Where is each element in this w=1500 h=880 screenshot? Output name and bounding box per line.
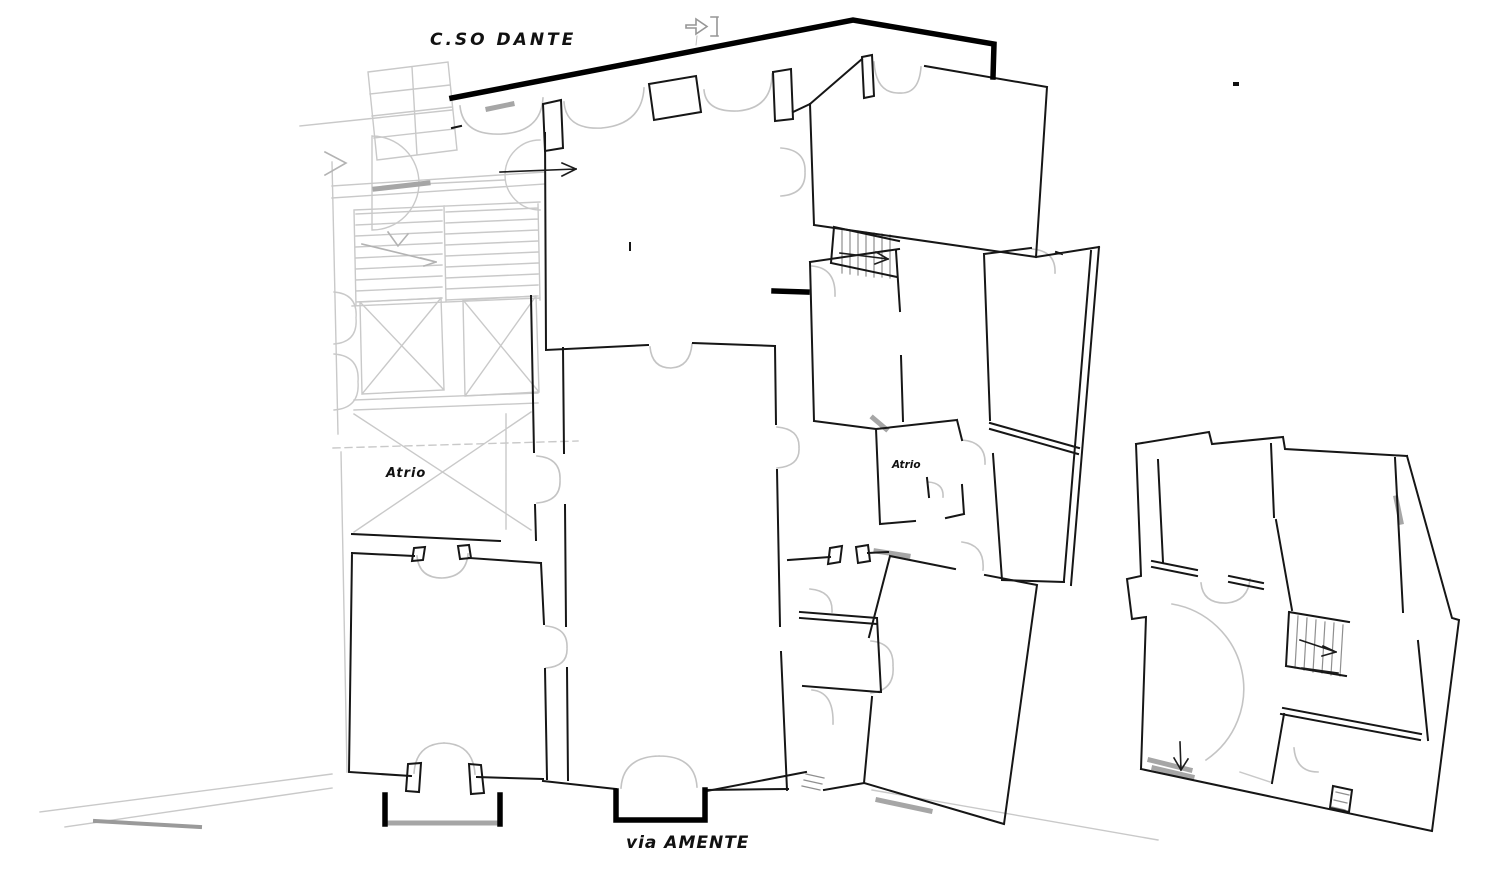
door-arcs-layer [414,62,1318,788]
left-block-walls [349,296,547,779]
staircase-left [352,202,540,306]
floor-plan-page: C.SO DANTE via AMENTE Atrio Atrio [0,0,1500,880]
shaft-band [354,393,538,410]
window-sills-layer [375,104,1401,823]
street-label-via-amente: via AMENTE [626,833,749,853]
sill-marks [375,104,1401,823]
shaft-cross-right [463,296,539,396]
east-annex-walls [984,247,1099,585]
atrio-right-walls [876,420,964,524]
cad-cursor-icon [686,17,718,45]
edge-arrow-faded [325,152,346,175]
porch-left [385,795,500,824]
stray-mark [1233,82,1239,86]
street-mark-bottom-left [95,821,200,827]
stair-direction-gray [362,232,436,266]
faded-underlay-layer [40,62,1270,840]
interior-door-arcs [414,148,1055,788]
floor-plan-svg [0,0,1500,880]
door-jambs [406,545,870,794]
atrium-cross [354,412,531,532]
street-lines-bottom-right [872,772,1270,840]
street-label-corso-dante: C.SO DANTE [430,30,576,50]
room-label-atrio-left: Atrio [386,466,426,481]
bracket-glyph [711,17,718,36]
shaft-cross-left [360,298,444,394]
street-lines-bottom-left [40,774,332,827]
thick-wall-accent [774,291,807,292]
old-wall-dashed [333,441,578,448]
leader-tick [696,36,697,45]
north-east-room-walls [793,59,1047,257]
south-rooms-walls [707,552,1037,824]
left-outer-wall-faded [332,162,347,772]
block-arrow-glyph [686,19,707,34]
facade-window-arcs [460,62,921,134]
hall-walls [543,133,788,790]
room-label-atrio-right: Atrio [892,459,921,471]
porch-right [616,790,705,820]
square-room-walls [810,251,903,429]
detached-door-arcs [1172,579,1318,772]
